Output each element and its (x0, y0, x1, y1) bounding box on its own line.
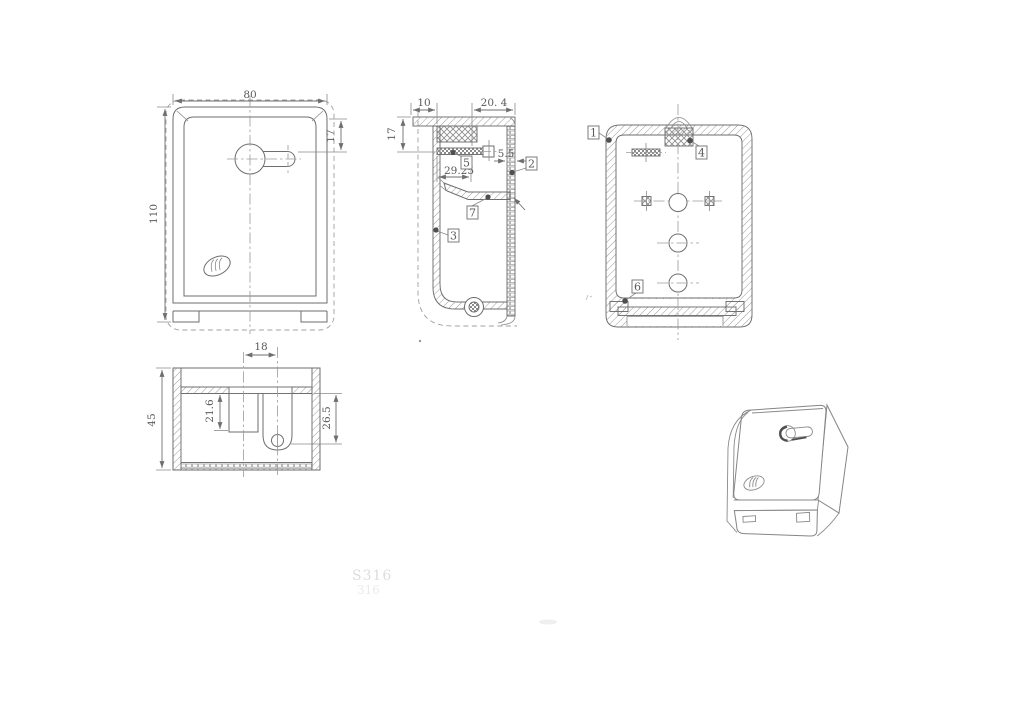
latch-shelf (437, 148, 484, 155)
callout-5-label: 5 (463, 157, 470, 170)
dim-10-label: 10 (417, 97, 430, 109)
drawing-svg: 80 110 17 (0, 0, 1024, 718)
dim-204-label: 20. 4 (481, 97, 508, 109)
stray-mark (586, 295, 592, 300)
bottom-row (181, 463, 312, 471)
iso-bottom-right-edge (817, 513, 839, 536)
left-wall (173, 368, 181, 470)
bottom-recess (627, 317, 723, 327)
callout-4: 4 (687, 138, 707, 160)
callout-4-label: 4 (698, 147, 705, 160)
logo-emblem (201, 252, 234, 280)
bottom-bar (618, 307, 736, 316)
strip-left (181, 387, 229, 394)
dim-17-label: 17 (386, 127, 398, 140)
dim-width-label: 80 (243, 89, 256, 101)
engineering-drawing-sheet: 80 110 17 (0, 0, 1024, 718)
isometric-view (727, 405, 848, 536)
dim-216-label: 21.6 (204, 399, 216, 423)
side-section-view: 10 20. 4 17 29.25 5.5 5 (386, 97, 537, 326)
iso-front-face (734, 405, 826, 500)
dim-keyhole-offset: 17 (298, 119, 347, 152)
keyhole-slot (227, 144, 301, 174)
watermark-line1: S316 (352, 568, 392, 584)
wall-ring (606, 125, 752, 327)
top-wall (413, 117, 515, 126)
dim-45-label: 45 (146, 413, 158, 426)
strip-right (292, 387, 312, 394)
bottom-boss-core (469, 302, 479, 312)
dim-18-label: 18 (254, 341, 267, 353)
dim-height: 110 (148, 107, 171, 322)
section-arrow (514, 198, 525, 210)
right-wall (312, 368, 320, 470)
top-section-view: 18 45 21.6 26.5 (146, 341, 342, 477)
dim-depth: 45 (146, 368, 171, 470)
outer-box (173, 368, 320, 470)
watermark: S316 316 (352, 568, 392, 597)
right-wall-foot (498, 316, 515, 325)
dim-pocket-depth: 21.6 (204, 395, 228, 431)
callout-1-label: 1 (590, 127, 597, 140)
callout-2-label: 2 (528, 158, 535, 171)
angled-bracket (444, 183, 510, 200)
iso-base-lip (734, 500, 819, 511)
dim-265-label: 26.5 (321, 406, 333, 429)
dim-keyhole-label: 17 (325, 129, 337, 142)
iso-base (734, 510, 817, 536)
callout-6-label: 6 (634, 281, 641, 294)
hole-top (669, 194, 687, 212)
spring-block (437, 126, 477, 142)
scan-smudge (539, 620, 557, 625)
dim-55-label: 5.5 (498, 148, 515, 160)
callout-3-label: 3 (450, 230, 457, 243)
right-foot-block (726, 302, 744, 312)
dim-slot-spacing: 18 (246, 341, 276, 355)
back-section-view: 1 4 6 (586, 104, 752, 340)
spring-block (665, 128, 693, 146)
watermark-line2: 316 (357, 583, 380, 597)
scan-dot (419, 340, 421, 342)
front-view: 80 110 17 (148, 89, 347, 334)
callout-7-label: 7 (469, 207, 476, 220)
dim-height-label: 110 (148, 204, 160, 224)
